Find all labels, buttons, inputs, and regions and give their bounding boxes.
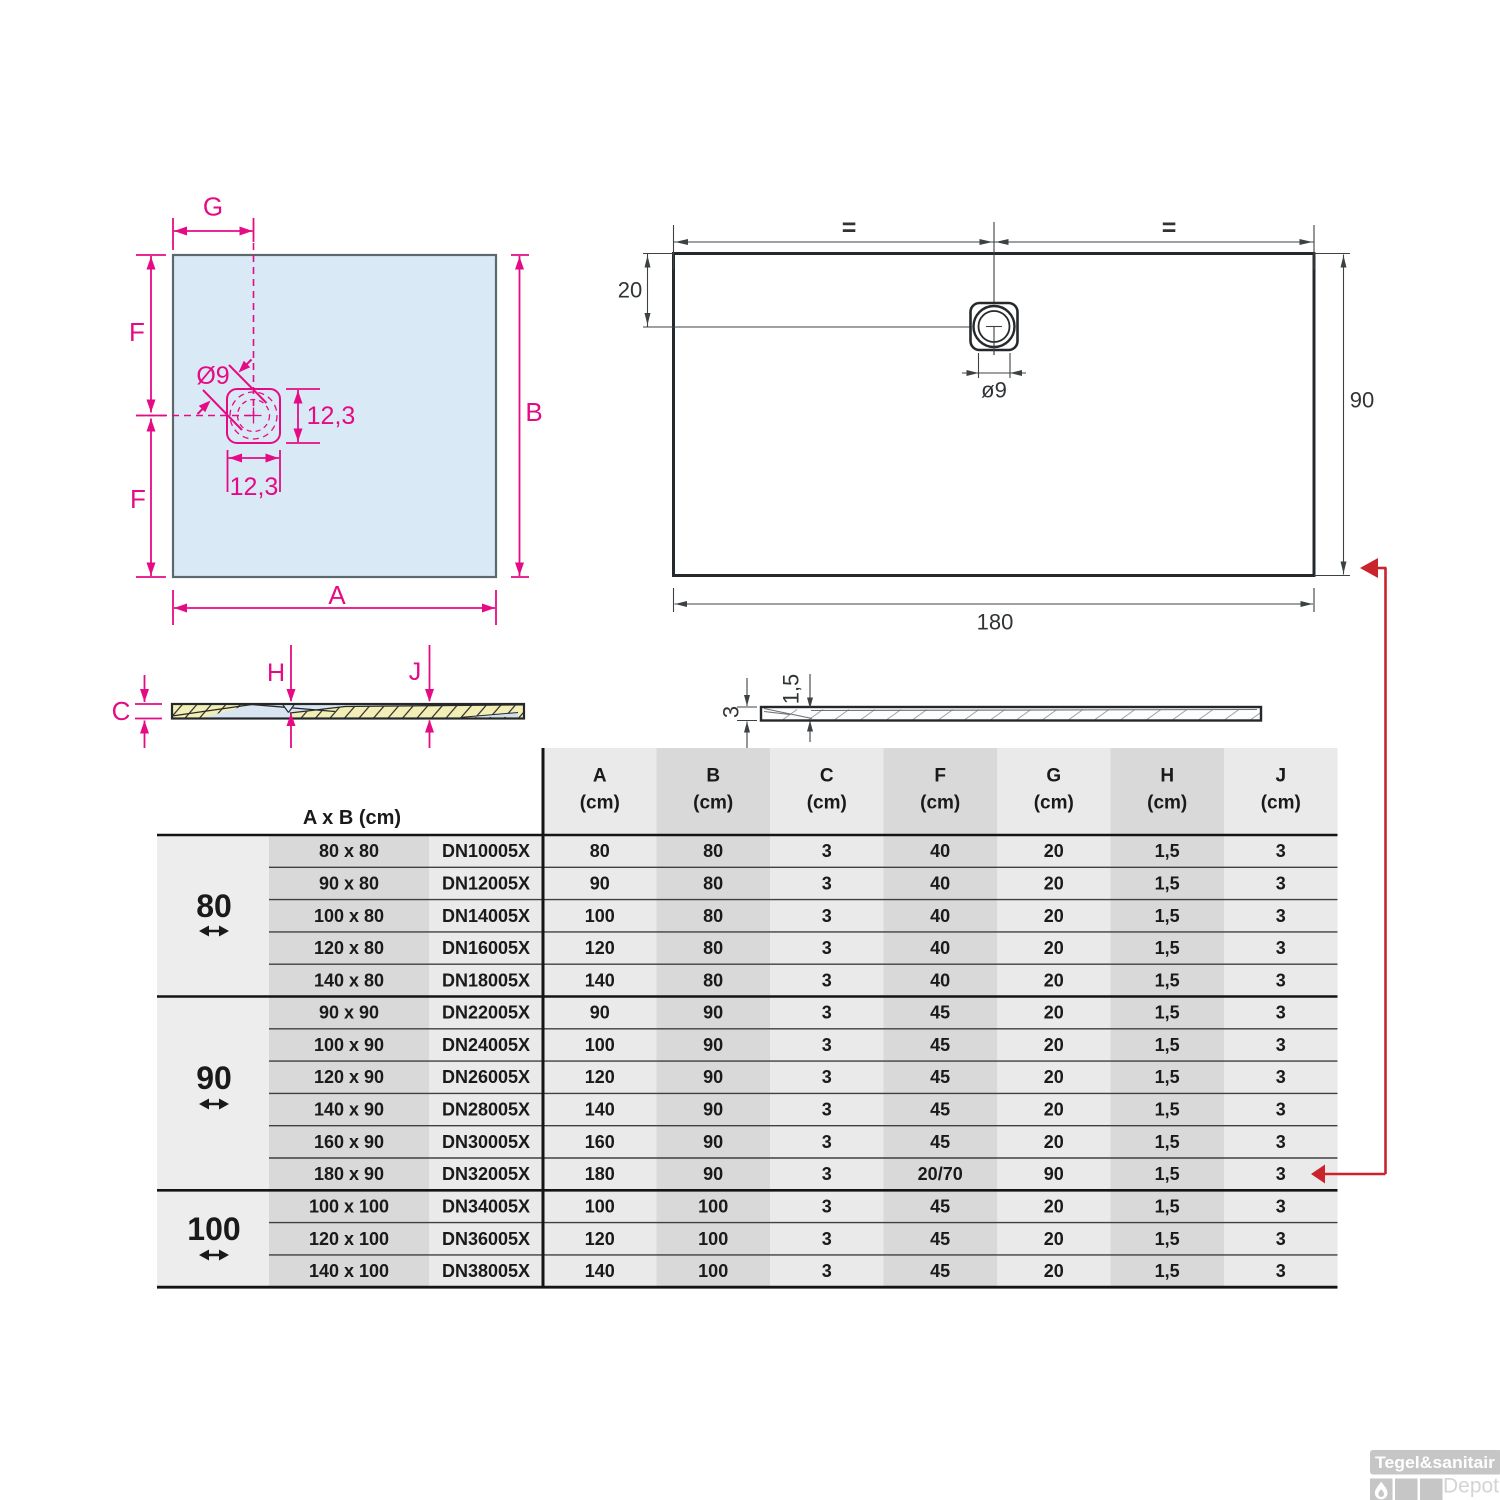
svg-text:100: 100 (585, 1197, 615, 1217)
svg-text:3: 3 (1276, 1003, 1286, 1023)
svg-text:DN12005X: DN12005X (442, 873, 530, 893)
svg-text:90 x 90: 90 x 90 (319, 1003, 379, 1023)
svg-text:DN28005X: DN28005X (442, 1100, 530, 1120)
svg-text:J: J (1276, 766, 1287, 787)
svg-text:80: 80 (590, 841, 610, 861)
svg-text:140 x 90: 140 x 90 (314, 1100, 384, 1120)
svg-text:3: 3 (822, 938, 832, 958)
svg-text:20: 20 (1044, 1067, 1064, 1087)
svg-text:DN10005X: DN10005X (442, 841, 530, 861)
svg-text:=: = (1162, 214, 1177, 242)
svg-text:DN38005X: DN38005X (442, 1261, 530, 1281)
svg-text:100 x 100: 100 x 100 (309, 1197, 389, 1217)
svg-text:90: 90 (703, 1164, 723, 1184)
svg-text:80: 80 (703, 906, 723, 926)
svg-text:F: F (129, 317, 145, 347)
svg-text:180 x 90: 180 x 90 (314, 1164, 384, 1184)
svg-text:F: F (130, 484, 146, 514)
svg-text:140: 140 (585, 970, 615, 990)
svg-text:A x B (cm): A x B (cm) (303, 807, 401, 829)
svg-text:C: C (112, 696, 131, 726)
svg-text:3: 3 (1276, 1229, 1286, 1249)
svg-text:B: B (525, 397, 542, 427)
svg-text:3: 3 (1276, 970, 1286, 990)
svg-text:20: 20 (1044, 1100, 1064, 1120)
svg-text:20: 20 (618, 278, 642, 303)
svg-text:3: 3 (822, 1035, 832, 1055)
svg-text:3: 3 (822, 1197, 832, 1217)
svg-text:90: 90 (703, 1132, 723, 1152)
svg-text:F: F (934, 766, 946, 787)
svg-text:H: H (267, 659, 285, 687)
svg-text:20: 20 (1044, 873, 1064, 893)
svg-text:1,5: 1,5 (779, 674, 804, 705)
svg-text:3: 3 (1276, 1132, 1286, 1152)
svg-text:160 x 90: 160 x 90 (314, 1132, 384, 1152)
svg-text:80: 80 (703, 970, 723, 990)
svg-text:20/70: 20/70 (918, 1164, 963, 1184)
svg-text:DN18005X: DN18005X (442, 970, 530, 990)
svg-text:45: 45 (930, 1261, 950, 1281)
svg-text:1,5: 1,5 (1155, 1100, 1180, 1120)
svg-text:1,5: 1,5 (1155, 1067, 1180, 1087)
svg-text:20: 20 (1044, 1035, 1064, 1055)
svg-text:Depot: Depot (1443, 1475, 1499, 1498)
svg-text:120 x 100: 120 x 100 (309, 1229, 389, 1249)
svg-text:DN14005X: DN14005X (442, 906, 530, 926)
svg-text:1,5: 1,5 (1155, 873, 1180, 893)
svg-text:3: 3 (822, 1164, 832, 1184)
svg-text:80 x 80: 80 x 80 (319, 841, 379, 861)
svg-text:120 x 90: 120 x 90 (314, 1067, 384, 1087)
svg-text:140: 140 (585, 1261, 615, 1281)
svg-text:100 x 80: 100 x 80 (314, 906, 384, 926)
svg-text:100: 100 (585, 906, 615, 926)
svg-text:ø9: ø9 (981, 378, 1007, 403)
svg-text:(cm): (cm) (1034, 793, 1074, 814)
svg-text:DN26005X: DN26005X (442, 1067, 530, 1087)
svg-text:Ø9: Ø9 (196, 362, 229, 390)
svg-text:12,3: 12,3 (307, 402, 356, 430)
svg-text:3: 3 (822, 841, 832, 861)
svg-text:1,5: 1,5 (1155, 1197, 1180, 1217)
svg-text:20: 20 (1044, 841, 1064, 861)
svg-text:90: 90 (1350, 388, 1374, 413)
svg-text:1,5: 1,5 (1155, 1132, 1180, 1152)
svg-text:12,3: 12,3 (230, 473, 279, 501)
svg-text:3: 3 (1276, 1261, 1286, 1281)
svg-text:H: H (1160, 766, 1174, 787)
svg-text:DN36005X: DN36005X (442, 1229, 530, 1249)
svg-text:100 x 90: 100 x 90 (314, 1035, 384, 1055)
svg-text:3: 3 (822, 1067, 832, 1087)
svg-text:45: 45 (930, 1035, 950, 1055)
svg-text:B: B (706, 766, 720, 787)
svg-text:45: 45 (930, 1197, 950, 1217)
svg-text:100: 100 (698, 1197, 728, 1217)
svg-text:180: 180 (585, 1164, 615, 1184)
svg-text:=: = (842, 214, 857, 242)
svg-text:120: 120 (585, 1229, 615, 1249)
svg-text:(cm): (cm) (1147, 793, 1187, 814)
svg-text:3: 3 (1276, 1067, 1286, 1087)
svg-text:160: 160 (585, 1132, 615, 1152)
svg-text:45: 45 (930, 1067, 950, 1087)
svg-text:DN30005X: DN30005X (442, 1132, 530, 1152)
svg-text:20: 20 (1044, 1261, 1064, 1281)
svg-text:1,5: 1,5 (1155, 1261, 1180, 1281)
svg-text:40: 40 (930, 970, 950, 990)
svg-text:90: 90 (590, 1003, 610, 1023)
svg-text:Tegel&sanitair: Tegel&sanitair (1375, 1453, 1495, 1472)
svg-text:1,5: 1,5 (1155, 1003, 1180, 1023)
svg-text:1,5: 1,5 (1155, 906, 1180, 926)
svg-text:90: 90 (1044, 1164, 1064, 1184)
svg-text:90: 90 (703, 1035, 723, 1055)
svg-text:140 x 100: 140 x 100 (309, 1261, 389, 1281)
svg-text:1,5: 1,5 (1155, 841, 1180, 861)
svg-text:40: 40 (930, 841, 950, 861)
svg-text:100: 100 (698, 1229, 728, 1249)
svg-text:1,5: 1,5 (1155, 970, 1180, 990)
svg-text:DN24005X: DN24005X (442, 1035, 530, 1055)
svg-text:20: 20 (1044, 1003, 1064, 1023)
svg-text:90: 90 (590, 873, 610, 893)
svg-text:(cm): (cm) (920, 793, 960, 814)
svg-text:20: 20 (1044, 970, 1064, 990)
svg-text:3: 3 (822, 970, 832, 990)
svg-text:3: 3 (719, 706, 744, 718)
svg-text:100: 100 (698, 1261, 728, 1281)
svg-text:80: 80 (703, 841, 723, 861)
svg-text:(cm): (cm) (1261, 793, 1301, 814)
svg-text:DN34005X: DN34005X (442, 1197, 530, 1217)
svg-text:120: 120 (585, 938, 615, 958)
svg-text:90: 90 (703, 1003, 723, 1023)
svg-text:3: 3 (1276, 906, 1286, 926)
svg-text:140: 140 (585, 1100, 615, 1120)
svg-text:90: 90 (703, 1067, 723, 1087)
svg-text:45: 45 (930, 1229, 950, 1249)
svg-text:(cm): (cm) (693, 793, 733, 814)
svg-text:20: 20 (1044, 906, 1064, 926)
svg-text:C: C (820, 766, 834, 787)
svg-text:45: 45 (930, 1003, 950, 1023)
svg-text:3: 3 (1276, 1035, 1286, 1055)
svg-text:3: 3 (822, 1100, 832, 1120)
svg-text:90: 90 (196, 1060, 232, 1096)
svg-text:1,5: 1,5 (1155, 1229, 1180, 1249)
svg-text:A: A (593, 766, 607, 787)
svg-text:3: 3 (822, 1229, 832, 1249)
svg-text:40: 40 (930, 938, 950, 958)
svg-text:20: 20 (1044, 1229, 1064, 1249)
svg-text:3: 3 (822, 873, 832, 893)
svg-text:120 x 80: 120 x 80 (314, 938, 384, 958)
svg-text:3: 3 (822, 1261, 832, 1281)
svg-text:3: 3 (822, 1003, 832, 1023)
svg-text:(cm): (cm) (580, 793, 620, 814)
svg-text:G: G (1046, 766, 1061, 787)
svg-text:100: 100 (585, 1035, 615, 1055)
svg-text:180: 180 (977, 610, 1014, 635)
svg-text:80: 80 (703, 938, 723, 958)
svg-text:40: 40 (930, 873, 950, 893)
svg-text:90: 90 (703, 1100, 723, 1120)
svg-text:3: 3 (1276, 1164, 1286, 1184)
svg-text:90 x 80: 90 x 80 (319, 873, 379, 893)
svg-text:80: 80 (196, 888, 232, 924)
svg-text:(cm): (cm) (807, 793, 847, 814)
svg-text:45: 45 (930, 1100, 950, 1120)
svg-text:1,5: 1,5 (1155, 1035, 1180, 1055)
svg-text:120: 120 (585, 1067, 615, 1087)
svg-text:80: 80 (703, 873, 723, 893)
svg-text:3: 3 (1276, 841, 1286, 861)
svg-text:45: 45 (930, 1132, 950, 1152)
svg-text:A: A (328, 580, 346, 610)
svg-text:3: 3 (822, 906, 832, 926)
svg-text:DN22005X: DN22005X (442, 1003, 530, 1023)
svg-text:140 x 80: 140 x 80 (314, 970, 384, 990)
svg-text:20: 20 (1044, 1132, 1064, 1152)
svg-text:40: 40 (930, 906, 950, 926)
svg-text:100: 100 (187, 1211, 240, 1247)
svg-text:DN16005X: DN16005X (442, 938, 530, 958)
svg-text:J: J (409, 658, 422, 686)
svg-text:3: 3 (1276, 1197, 1286, 1217)
svg-text:1,5: 1,5 (1155, 1164, 1180, 1184)
svg-text:G: G (203, 192, 223, 222)
svg-text:3: 3 (822, 1132, 832, 1152)
svg-text:20: 20 (1044, 1197, 1064, 1217)
svg-text:1,5: 1,5 (1155, 938, 1180, 958)
svg-text:3: 3 (1276, 1100, 1286, 1120)
svg-text:DN32005X: DN32005X (442, 1164, 530, 1184)
svg-text:3: 3 (1276, 938, 1286, 958)
svg-text:3: 3 (1276, 873, 1286, 893)
svg-text:20: 20 (1044, 938, 1064, 958)
